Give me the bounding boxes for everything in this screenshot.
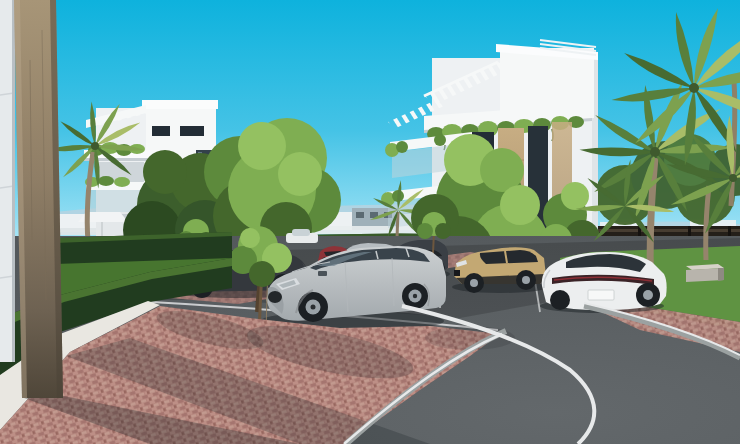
timber-pillar [0, 0, 63, 398]
render-scene [0, 0, 740, 444]
car-white-fastback [540, 252, 667, 313]
wall-panel [0, 0, 14, 362]
